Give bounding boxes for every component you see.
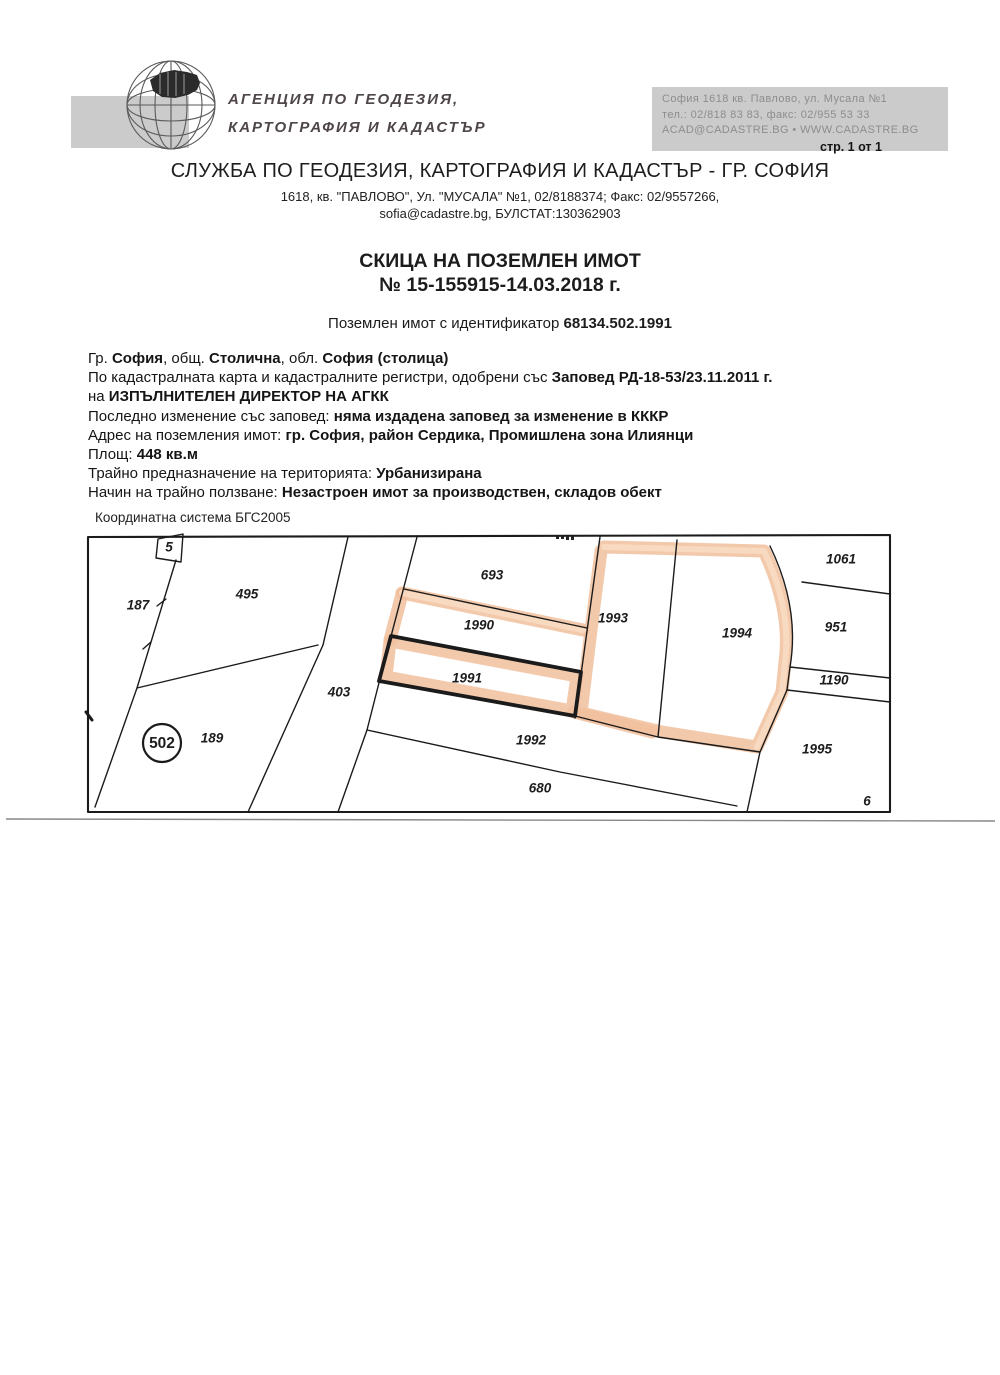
- parcel-label-1994: 1994: [722, 626, 753, 641]
- property-detail-line: Начин на трайно ползване: Незастроен имо…: [88, 483, 928, 502]
- boundary-693-1990: [404, 589, 587, 628]
- district-circle: 502: [143, 724, 181, 762]
- parcel-label-187: 187: [127, 598, 151, 613]
- property-detail-line: Адрес на поземления имот: гр. София, рай…: [88, 426, 928, 445]
- parcel-labels: 5187495693199019914031891992680199319941…: [127, 540, 872, 809]
- cadastral-map: 502 518749569319901991403189199268019931…: [0, 527, 1000, 832]
- boundary-1061-951: [802, 582, 890, 594]
- parcel-label-1991: 1991: [452, 671, 482, 686]
- boundary-495-189: [137, 645, 318, 688]
- parcel-label-680: 680: [529, 781, 552, 796]
- parcel-label-1061: 1061: [826, 552, 856, 567]
- property-id-prefix: Поземлен имот с идентификатор: [328, 315, 563, 332]
- agency-logo-globe-icon: [116, 50, 228, 160]
- property-detail-line: Трайно предназначение на територията: Ур…: [88, 464, 928, 483]
- parcel-label-1992: 1992: [516, 733, 547, 748]
- parcel-label-189: 189: [201, 731, 224, 746]
- agency-name-line2: КАРТОГРАФИЯ И КАДАСТЪР: [228, 114, 487, 142]
- boundary-403-west: [248, 645, 323, 812]
- boundary-495-east: [323, 537, 348, 645]
- boundary-1993-1994: [658, 540, 677, 737]
- parcel-label-403: 403: [327, 685, 351, 700]
- office-address-line2: sofia@cadastre.bg, БУЛСТАТ:130362903: [0, 206, 1000, 221]
- parcel-label-5: 5: [165, 540, 173, 555]
- parcel-label-1995: 1995: [802, 742, 833, 757]
- parcel-label-6: 6: [863, 794, 871, 809]
- parcel-label-1190: 1190: [819, 673, 849, 688]
- scan-artifact-line: [6, 819, 995, 821]
- agency-name-line1: АГЕНЦИЯ ПО ГЕОДЕЗИЯ,: [228, 86, 487, 114]
- agency-contact: София 1618 кв. Павлово, ул. Мусала №1тел…: [662, 92, 944, 139]
- property-details: Гр. София, общ. Столична, обл. София (ст…: [88, 349, 928, 503]
- property-id-value: 68134.502.1991: [564, 315, 672, 332]
- agency-name: АГЕНЦИЯ ПО ГЕОДЕЗИЯ, КАРТОГРАФИЯ И КАДАС…: [228, 86, 487, 142]
- bulgaria-map-silhouette: [150, 70, 200, 98]
- scanned-document: { "page": { "page_label": "стр. 1 от 1" …: [0, 0, 1000, 1375]
- parcel-label-693: 693: [481, 568, 504, 583]
- survey-tick: [157, 599, 166, 606]
- property-detail-line: на ИЗПЪЛНИТЕЛЕН ДИРЕКТОР НА АГКК: [88, 387, 928, 406]
- boundary-1190-south: [787, 690, 890, 702]
- parcel-label-951: 951: [825, 620, 848, 635]
- agency-contact-line: тел.: 02/818 83 83, факс: 02/955 53 33: [662, 108, 944, 124]
- document-title: СКИЦА НА ПОЗЕМЛЕН ИМОТ: [0, 250, 1000, 273]
- agency-contact-line: ACAD@CADASTRE.BG • WWW.CADASTRE.BG: [662, 123, 944, 139]
- office-address-line1: 1618, кв. "ПАВЛОВО", Ул. "МУСАЛА" №1, 02…: [0, 189, 1000, 204]
- property-detail-line: Последно изменение със заповед: няма изд…: [88, 407, 928, 426]
- property-id-line: Поземлен имот с идентификатор 68134.502.…: [0, 315, 1000, 332]
- coordinate-system-label: Координатна система БГС2005: [95, 510, 291, 525]
- parcel-label-1993: 1993: [598, 611, 629, 626]
- page-number: стр. 1 от 1: [820, 140, 930, 154]
- office-title: СЛУЖБА ПО ГЕОДЕЗИЯ, КАРТОГРАФИЯ И КАДАСТ…: [0, 160, 1000, 183]
- document-number: № 15-155915-14.03.2018 г.: [0, 274, 1000, 297]
- district-number: 502: [149, 735, 175, 752]
- property-detail-line: Гр. София, общ. Столична, обл. София (ст…: [88, 349, 928, 368]
- property-detail-line: По кадастралната карта и кадастралните р…: [88, 368, 928, 387]
- agency-contact-line: София 1618 кв. Павлово, ул. Мусала №1: [662, 92, 944, 108]
- parcel-label-1990: 1990: [464, 618, 495, 633]
- parcel-label-495: 495: [235, 587, 259, 602]
- property-detail-line: Площ: 448 кв.м: [88, 445, 928, 464]
